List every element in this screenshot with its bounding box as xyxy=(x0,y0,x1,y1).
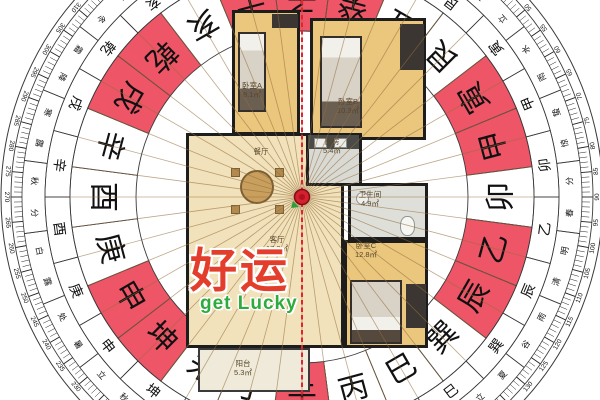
chair xyxy=(275,205,284,214)
bed-c xyxy=(350,280,402,344)
wardrobe-c xyxy=(406,284,426,328)
room-label-kitchen: 厨房 5.4㎡ xyxy=(306,138,358,155)
room-label-bedroom-a: 卧室A 8.1㎡ xyxy=(222,82,282,99)
room-area: 8.1㎡ xyxy=(222,91,282,100)
room-label-bedroom-c: 卧室C 12.8㎡ xyxy=(336,242,396,259)
room-area: 5.3㎡ xyxy=(213,369,273,378)
room-label-bedroom-b: 卧室B 10.3㎡ xyxy=(318,98,378,115)
room-area: 5.4㎡ xyxy=(306,147,358,156)
room-name: 餐厅 xyxy=(241,148,281,157)
room-area: 10.3㎡ xyxy=(318,107,378,116)
watermark: 好运 get Lucky xyxy=(190,246,320,315)
room-label-balcony: 阳台 5.3㎡ xyxy=(213,360,273,377)
room-label-dining: 餐厅 xyxy=(241,148,281,157)
bed-a xyxy=(238,32,266,112)
luopan-floorplan-screenshot: 子癸丑艮寅甲卯乙辰巽巳丙午丁未坤申庚酉辛戌乾亥壬子癸丑艮寅甲卯乙辰巽巳丙午丁未坤… xyxy=(0,0,600,400)
wardrobe-b xyxy=(400,24,424,70)
chair xyxy=(231,205,240,214)
watermark-english: get Lucky xyxy=(200,293,320,315)
watermark-chinese: 好运 xyxy=(190,246,320,296)
floorplan: 卧室A 8.1㎡ 卧室B 10.3㎡ 厨房 5.4㎡ 卫生间 4.9㎡ 卧室C … xyxy=(0,0,600,400)
chair xyxy=(275,168,284,177)
dining-table xyxy=(240,170,274,204)
room-label-bathroom: 卫生间 4.9㎡ xyxy=(344,191,396,208)
wardrobe-a xyxy=(272,14,298,28)
chair xyxy=(231,168,240,177)
room-area: 4.9㎡ xyxy=(344,200,396,209)
toilet xyxy=(400,216,415,236)
room-area: 12.8㎡ xyxy=(336,251,396,260)
